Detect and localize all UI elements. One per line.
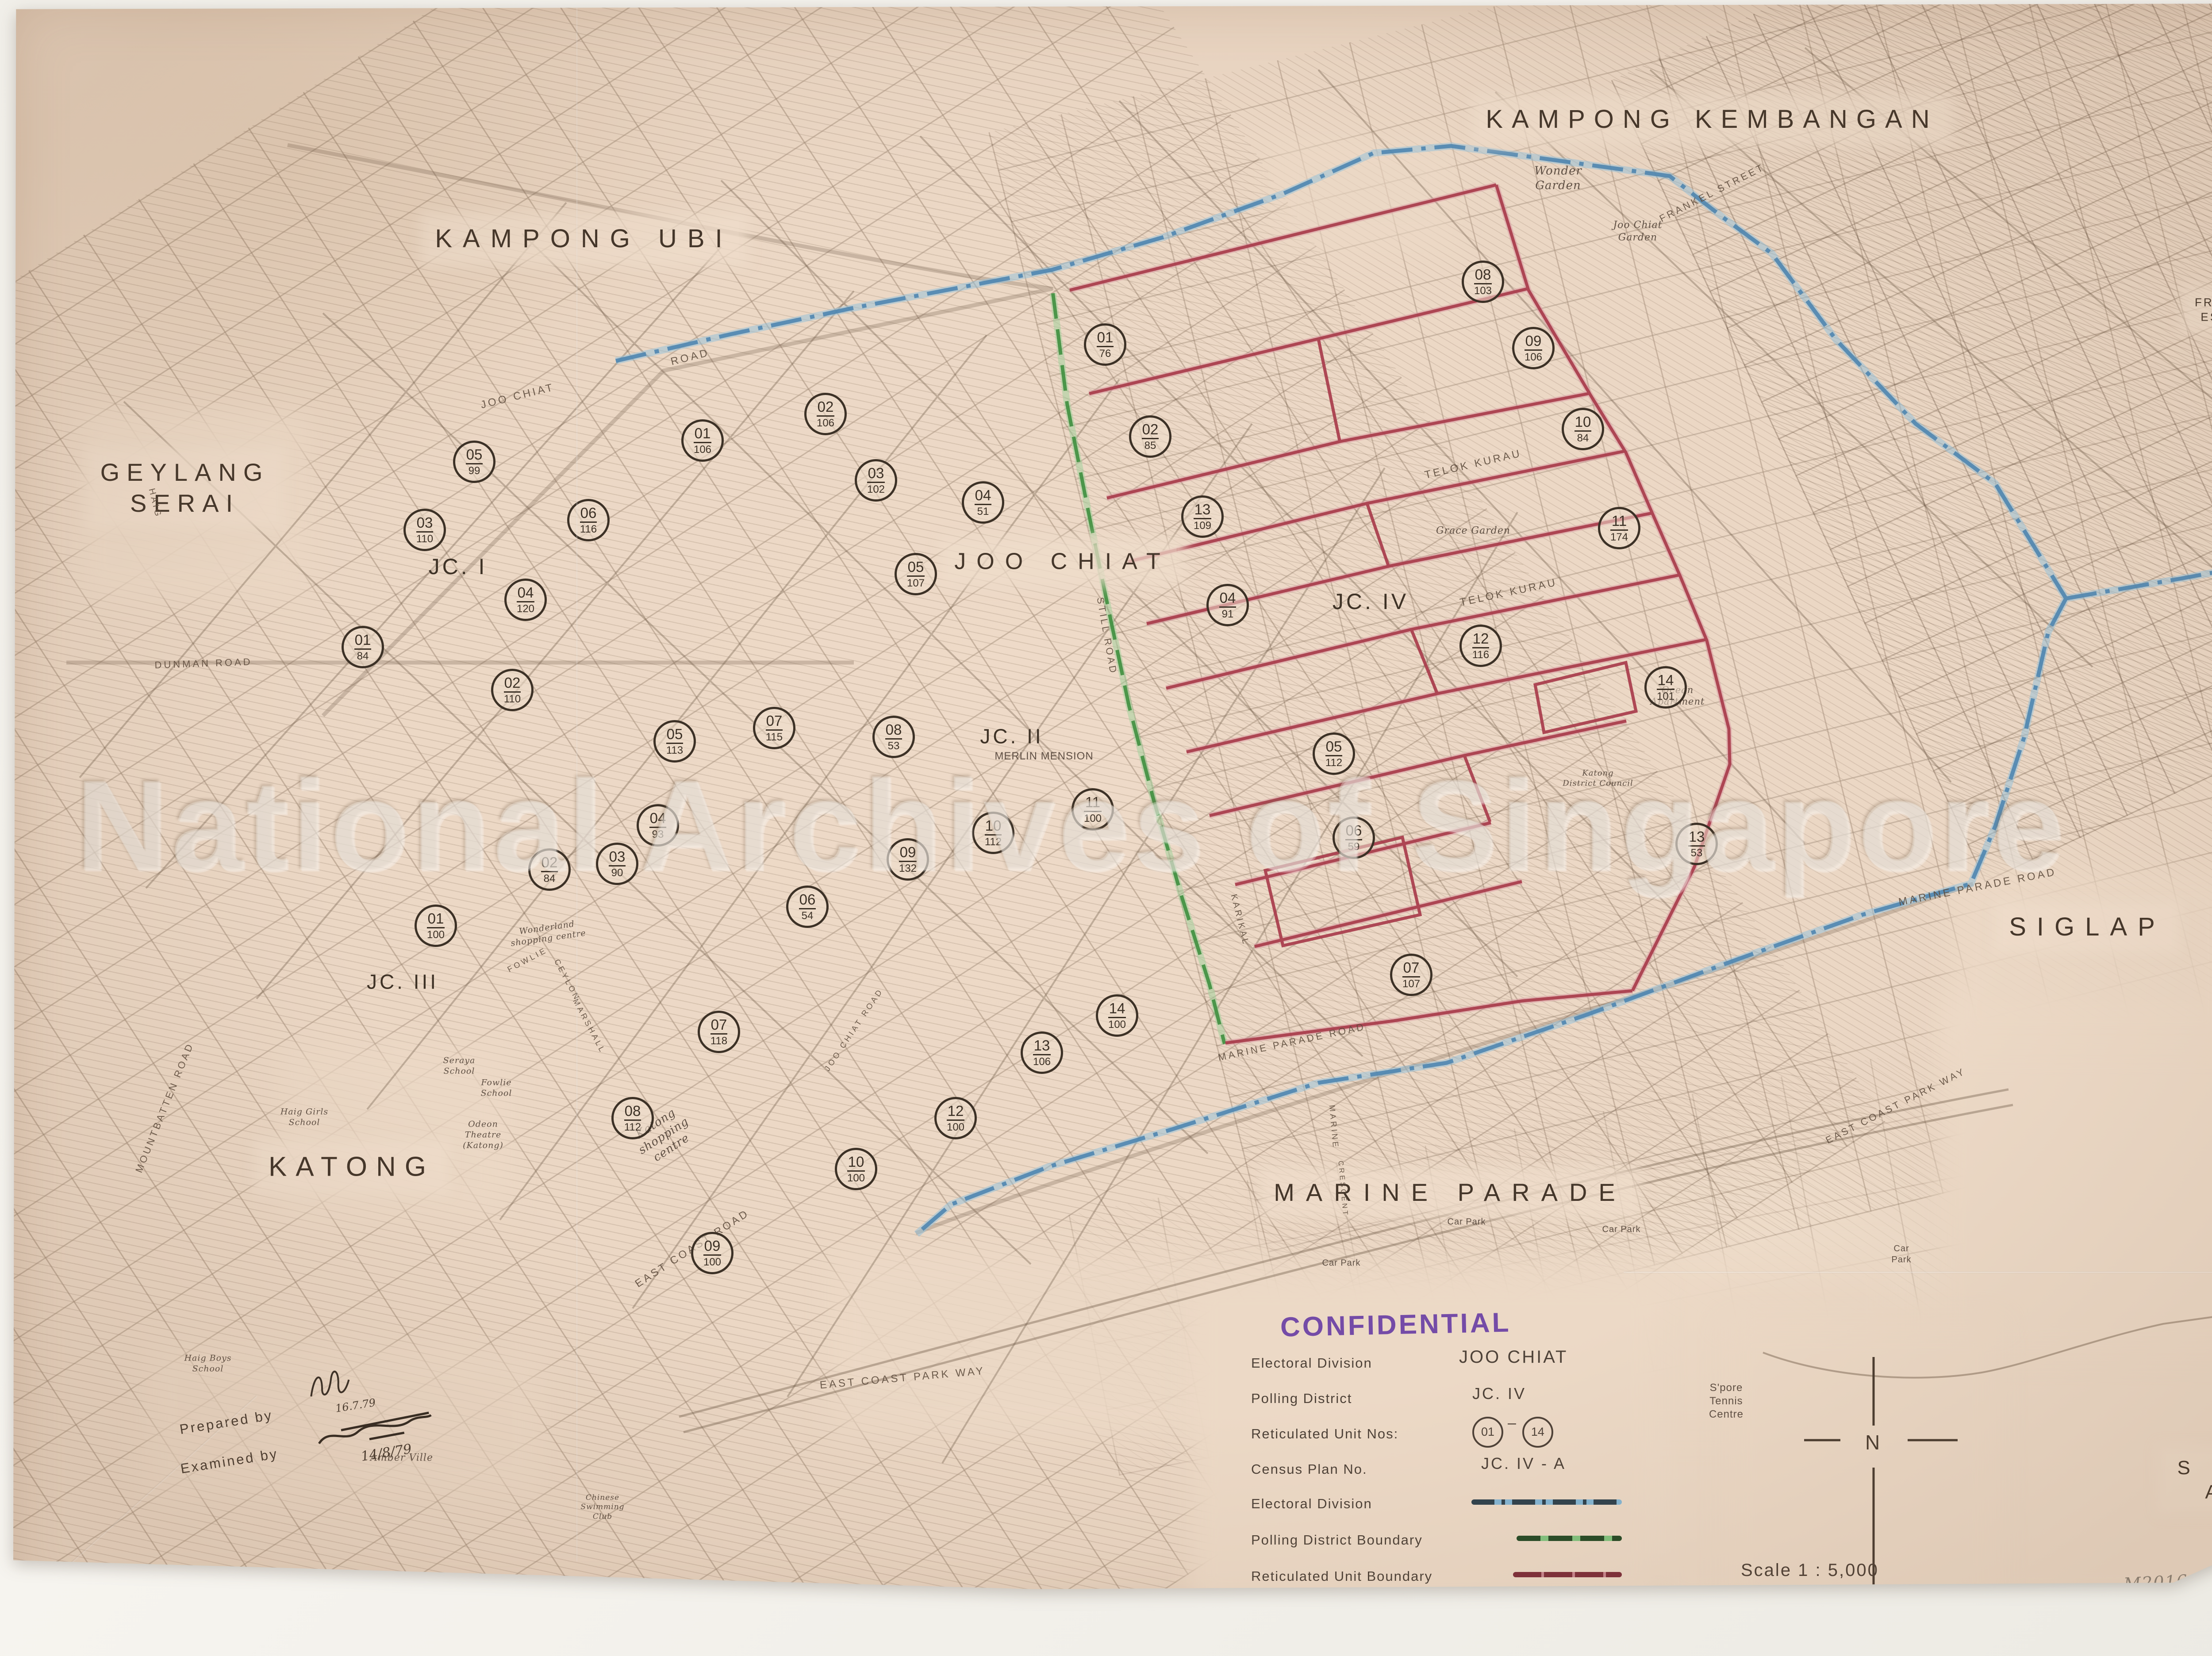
reticulated-unit-circle: 10100 [835, 1148, 877, 1190]
reticulated-unit-circle: 0493 [637, 804, 679, 847]
poi-label: Haig Girls School [280, 1107, 328, 1128]
region-label: KAMPONG KEMBANGAN [1479, 102, 1944, 138]
poi-label: Car Park [1602, 1224, 1641, 1235]
poi-label: Car Park [1891, 1243, 1911, 1265]
reticulated-unit-circle: 13106 [1021, 1031, 1063, 1074]
reticulated-unit-circle: 07115 [753, 707, 795, 749]
reticulated-unit-circle: 06116 [567, 499, 610, 541]
reticulated-unit-boundary-lines [1070, 185, 1730, 1043]
poi-label: Haig Boys School [184, 1353, 231, 1374]
region-label: MARINE PARADE [1267, 1175, 1632, 1210]
open-area-geylang-serai [80, 410, 310, 596]
reticulated-unit-circle: 0390 [596, 843, 638, 885]
poi-label: Grace Garden [1436, 525, 1510, 537]
range-dash: – [1508, 1414, 1518, 1432]
reticulated-unit-circle: 1084 [1562, 408, 1604, 450]
poi-label: Fowlie School [481, 1077, 512, 1099]
open-area-katong [279, 1047, 509, 1215]
open-area-siglap [1951, 870, 2212, 1047]
unit-range-start-circle: 01 [1472, 1417, 1503, 1448]
reticulated-unit-circle: 11100 [1071, 788, 1114, 831]
reticulated-unit-circle: 03110 [403, 509, 446, 551]
reticulated-unit-circle: 08103 [1462, 261, 1504, 303]
polling-district-label: JC. II [980, 724, 1043, 749]
reticulated-unit-circle: 10112 [972, 812, 1014, 854]
poi-label: Wonderland shopping centre [509, 918, 587, 949]
archive-reference-number: M2016_000034_ELD [2123, 1564, 2212, 1594]
legend-key-reticulated-unit: Reticulated Unit Boundary [1251, 1562, 1640, 1593]
map-paper: KAMPONG UBIKAMPONG KEMBANGANGEYLANG SERA… [13, 4, 2212, 1610]
road-label: MARSHALL [571, 997, 608, 1055]
reticulated-unit-circle: 05113 [653, 720, 696, 763]
road-label: EAST COAST ROAD [633, 1207, 752, 1291]
legend-key-polling-district: Polling District Boundary [1251, 1526, 1640, 1557]
legend-value: JC. IV [1472, 1384, 1526, 1403]
region-label: KATONG [262, 1148, 441, 1186]
poi-label: Chinese Swimming Club [580, 1493, 624, 1522]
poi-label: Joo Chiat Garden [1613, 219, 1662, 244]
examined-by-label: Examined by [180, 1446, 280, 1477]
reticulated-unit-circle: 05107 [895, 553, 937, 595]
reticulated-unit-circle: 0491 [1206, 584, 1249, 626]
map-legend: CONFIDENTIAL Electoral Division JOO CHIA… [1251, 1309, 1640, 1610]
reticulated-unit-circle: 07107 [1390, 954, 1432, 996]
confidential-stamp: CONFIDENTIAL [1280, 1307, 1511, 1343]
poi-label: Wonder Garden [1534, 164, 1582, 193]
road-label: DUNMAN ROAD [154, 655, 253, 671]
reticulated-unit-circle: 09132 [887, 838, 929, 881]
reticulated-unit-circle: 0654 [786, 885, 829, 928]
poi-label: Seraya School [443, 1055, 476, 1077]
reticulated-unit-circle: 01106 [681, 419, 724, 462]
polling-district-line-sample [1517, 1536, 1622, 1541]
road-label: MARINE PARADE ROAD [1217, 1020, 1367, 1064]
paper-shadow-wrap: KAMPONG UBIKAMPONG KEMBANGANGEYLANG SERA… [0, 0, 2212, 1656]
road-label: TELOK KURAU [1459, 576, 1559, 609]
road-label: EAST COAST PARK WAY [1824, 1065, 1968, 1146]
road-label: CEYLON [552, 958, 583, 1003]
reticulated-unit-circle: 08112 [611, 1097, 654, 1139]
reticulated-unit-circle: 0853 [872, 716, 915, 758]
map-fabric-kembangan-grid [1611, 0, 2212, 882]
road-label: FOWLIE [506, 945, 549, 974]
legend-value: JOO CHIAT [1459, 1347, 1568, 1367]
legend-row-electoral-division: Electoral Division JOO CHIAT [1251, 1349, 1640, 1380]
preparation-block: Prepared by 16.7.79 Examined by 14/8/79 [161, 1338, 530, 1516]
reticulated-unit-circle: 12100 [934, 1097, 977, 1139]
polling-district-boundary-line [1053, 293, 1225, 1044]
road-label: FRANKEL STREET [1657, 161, 1767, 225]
road-label: HAIG [146, 487, 164, 520]
legend-label: Polling District [1251, 1391, 1352, 1407]
reticulated-unit-circle: 0284 [528, 848, 571, 891]
reticulated-unit-circle: 03102 [855, 459, 897, 502]
road-label: MARINE [1327, 1104, 1340, 1150]
prepared-by-label: Prepared by [179, 1407, 274, 1437]
legend-label: Census Plan No. [1251, 1461, 1367, 1477]
polling-district-label: JC. I [429, 553, 488, 581]
road-label: STILL ROAD [1094, 596, 1120, 676]
scanned-map-sheet: KAMPONG UBIKAMPONG KEMBANGANGEYLANG SERA… [0, 0, 2212, 1656]
reticulated-unit-circle: 04120 [504, 579, 547, 621]
reticulated-unit-circle: 05112 [1313, 732, 1355, 775]
region-label: FRANKEL ESTATE [2189, 294, 2212, 326]
polling-district-label: JC. III [367, 969, 438, 995]
road-label: JOO CHIAT [479, 381, 556, 412]
legend-key-label: Electoral Division [1251, 1496, 1372, 1512]
legend-row-polling-district: Polling District JC. IV [1251, 1384, 1640, 1415]
reticulated-unit-circle: 0176 [1084, 323, 1126, 366]
road-label: EAST COAST PARK WAY [819, 1365, 986, 1392]
archive-watermark: National Archives of Singapore [75, 751, 2066, 900]
reticulated-unit-circle: 0659 [1333, 816, 1375, 859]
reticulated-unit-circle: 0184 [342, 626, 384, 668]
reticulated-unit-circle: 12116 [1459, 625, 1502, 667]
compass-north-letter: N [1865, 1430, 1880, 1454]
road-label: JOO CHIAT ROAD [822, 986, 885, 1073]
poi-label: Katong District Council [1563, 769, 1633, 789]
legend-label: Electoral Division [1251, 1355, 1372, 1371]
legend-value: 01–14 [1472, 1414, 1553, 1448]
region-label: JOO CHIAT [948, 546, 1177, 578]
reticulated-unit-circle: 09106 [1512, 327, 1555, 369]
region-label: S E A [2166, 1454, 2212, 1506]
reticulated-unit-circle: 02110 [491, 669, 534, 711]
open-area-siglap-coast [1938, 994, 2212, 1357]
scale-label: Scale 1 : 5,000 [1741, 1560, 1879, 1580]
poi-label: MERLIN MENSION [995, 750, 1093, 763]
reticulated-unit-circle: 01100 [415, 905, 457, 947]
reticulated-unit-line-sample [1513, 1572, 1622, 1577]
polling-district-label: JC. IV [1333, 588, 1409, 616]
reticulated-unit-circle: 0599 [453, 441, 495, 483]
reticulated-unit-circle: 0451 [962, 481, 1004, 524]
road-label: KARIKAL [1228, 893, 1251, 947]
poi-label: Ocean Apartment [1651, 684, 1705, 708]
region-label: GEYLANG SERAI [94, 455, 276, 521]
region-label: KAMPONG UBI [429, 221, 739, 257]
legend-key-label: Polling District Boundary [1251, 1532, 1423, 1548]
legend-row-census-plan: Census Plan No. JC. IV - A [1251, 1455, 1640, 1486]
reticulated-unit-circle: 09100 [691, 1232, 733, 1274]
legend-row-reticulated-units: Reticulated Unit Nos: 01–14 [1251, 1420, 1640, 1451]
road-label: MARINE PARADE ROAD [1897, 866, 2058, 909]
poi-label: Car Park [1322, 1258, 1361, 1269]
region-label: SIGLAP [2003, 909, 2172, 945]
electoral-division-boundary-line [616, 146, 2212, 1234]
fold-crease-horizontal [1624, 1271, 2212, 1273]
reticulated-unit-circle: 07118 [698, 1011, 740, 1053]
reticulated-unit-circle: 13109 [1181, 495, 1224, 538]
road-label: MOUNTBATTEN ROAD [133, 1041, 196, 1175]
legend-value: JC. IV - A [1481, 1454, 1566, 1473]
fold-crease-vertical [576, 4, 578, 1561]
legend-label: Reticulated Unit Nos: [1251, 1426, 1398, 1442]
electoral-division-line-sample [1471, 1499, 1622, 1505]
open-area-kembangan-gap [1270, 136, 1455, 251]
legend-key-electoral-division: Electoral Division [1251, 1490, 1640, 1521]
reticulated-unit-circle: 11174 [1598, 507, 1640, 549]
map-fabric-telok-kurau-grid [988, 0, 2212, 1356]
poi-label: Car Park [1448, 1217, 1486, 1228]
reticulated-unit-circle: 1353 [1675, 823, 1718, 865]
reticulated-unit-circle: 14101 [1644, 666, 1687, 709]
poi-label: S'pore Tennis Centre [1709, 1381, 1743, 1421]
reticulated-unit-circle: 02106 [804, 393, 847, 435]
poi-label: Odeon Theatre (Katong) [463, 1119, 503, 1150]
reticulated-unit-circle: 14100 [1096, 994, 1138, 1037]
unit-range-end-circle: 14 [1522, 1417, 1553, 1448]
road-label: ROAD [669, 346, 711, 369]
legend-key-label: Reticulated Unit Boundary [1251, 1568, 1432, 1584]
road-label: TELOK KURAU [1423, 447, 1523, 482]
poi-label: Katong shopping centre [628, 1102, 699, 1169]
road-label: CRESCENT [1336, 1160, 1349, 1217]
reticulated-unit-circle: 0285 [1129, 415, 1171, 458]
